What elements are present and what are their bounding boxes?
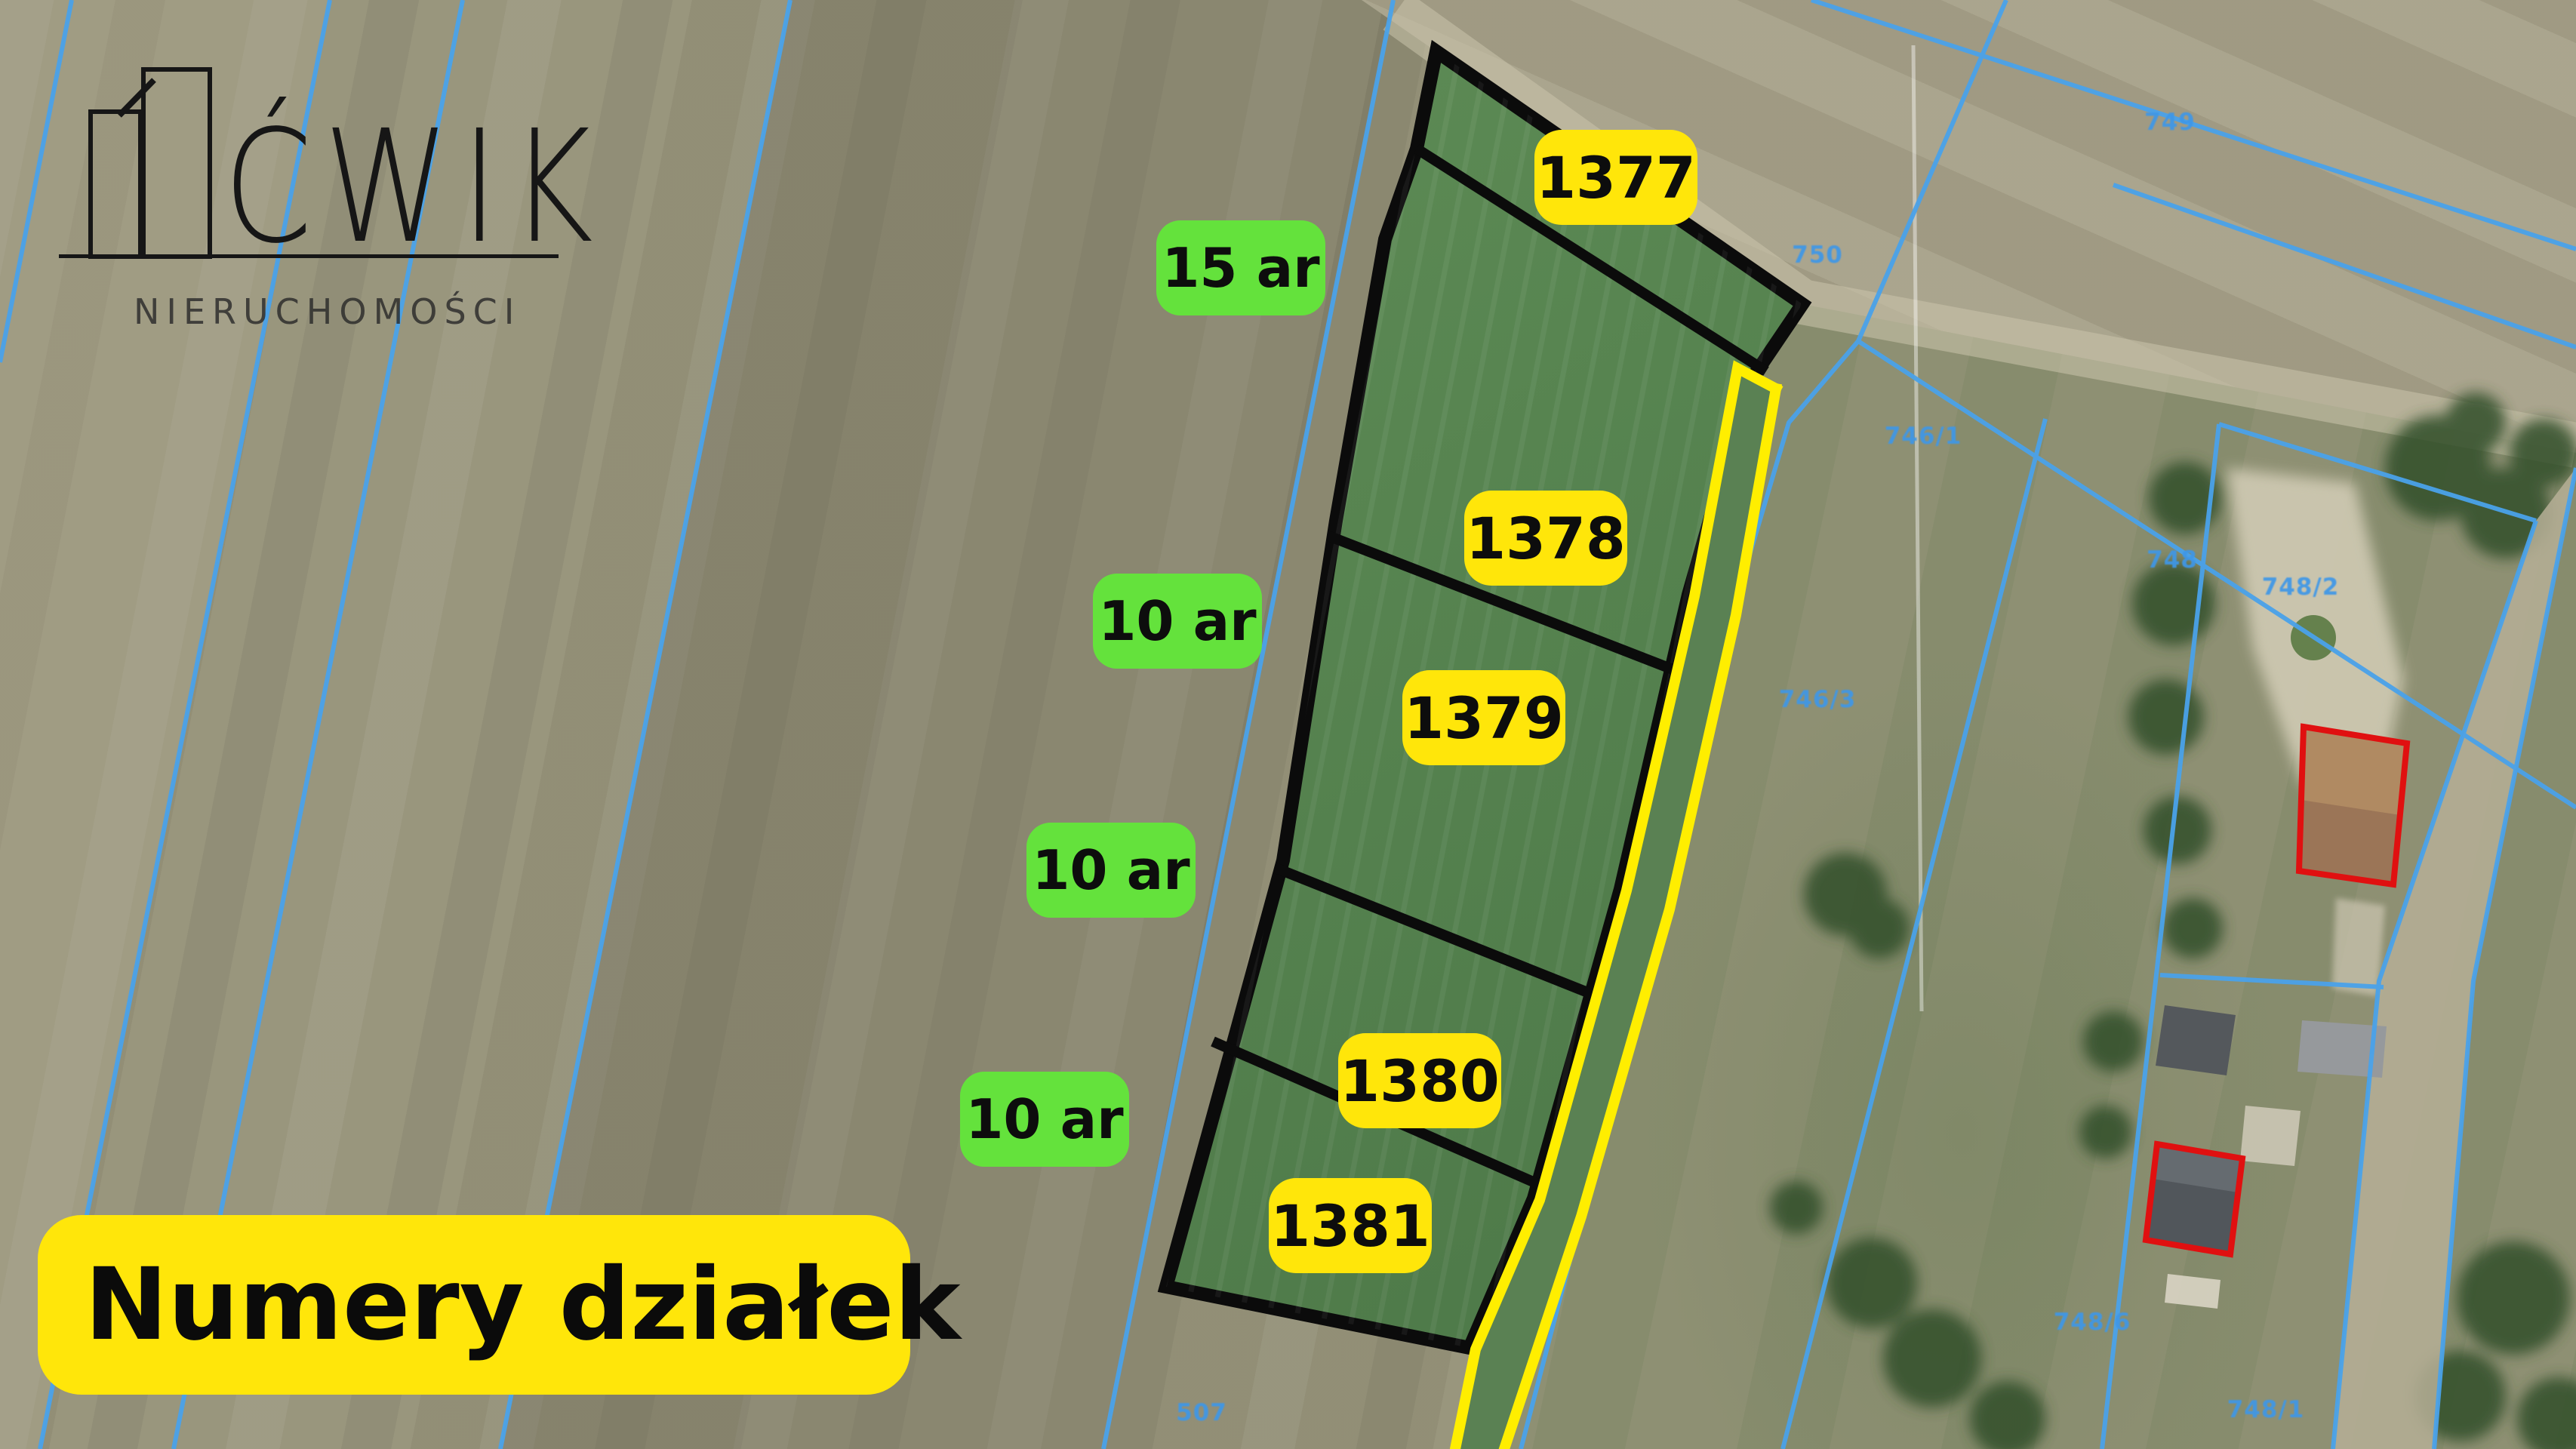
cadastral-label: 750 [1792, 241, 1843, 269]
parcel-area-badge-10ar-a: 10 ar [1093, 574, 1262, 669]
page-title: Numery działek [38, 1215, 910, 1395]
parcel-number-badge-1380: 1380 [1338, 1033, 1501, 1128]
cadastral-label: 746/1 [1885, 423, 1962, 450]
parcel-area-badge-10ar-c: 10 ar [960, 1072, 1129, 1167]
cadastral-label: 748/2 [2262, 574, 2340, 601]
brand-subtitle: NIERUCHOMOŚCI [134, 291, 521, 332]
parcel-area-badge-15ar: 15 ar [1156, 220, 1325, 315]
parcel-number-badge-1379: 1379 [1402, 670, 1565, 765]
parcel-number-badge-1381: 1381 [1269, 1178, 1432, 1273]
aerial-map: 749 750 748 746/1 746/3 748/2 748/6 748/… [0, 0, 2576, 1449]
field-track-vertical [1913, 45, 1922, 1011]
brand-name: ĆWIK [223, 97, 605, 278]
cadastral-label: 748 [2147, 546, 2198, 574]
white-shed [2165, 1274, 2221, 1309]
concrete-pad [2240, 1106, 2301, 1166]
brand-logo: ĆWIK NIERUCHOMOŚCI [0, 0, 679, 377]
parcel-number-badge-1378: 1378 [1464, 491, 1627, 586]
cadastral-label: 748/1 [2227, 1396, 2305, 1423]
cadastral-label: 749 [2144, 109, 2196, 136]
roof-outbuilding [2156, 1005, 2236, 1075]
cadastral-label: 748/6 [2054, 1309, 2131, 1336]
cadastral-label: 507 [1176, 1399, 1227, 1426]
parcel-number-badge-1377: 1377 [1534, 130, 1697, 225]
cadastral-label: 746/3 [1779, 686, 1857, 713]
parcel-area-badge-10ar-b: 10 ar [1026, 823, 1196, 918]
